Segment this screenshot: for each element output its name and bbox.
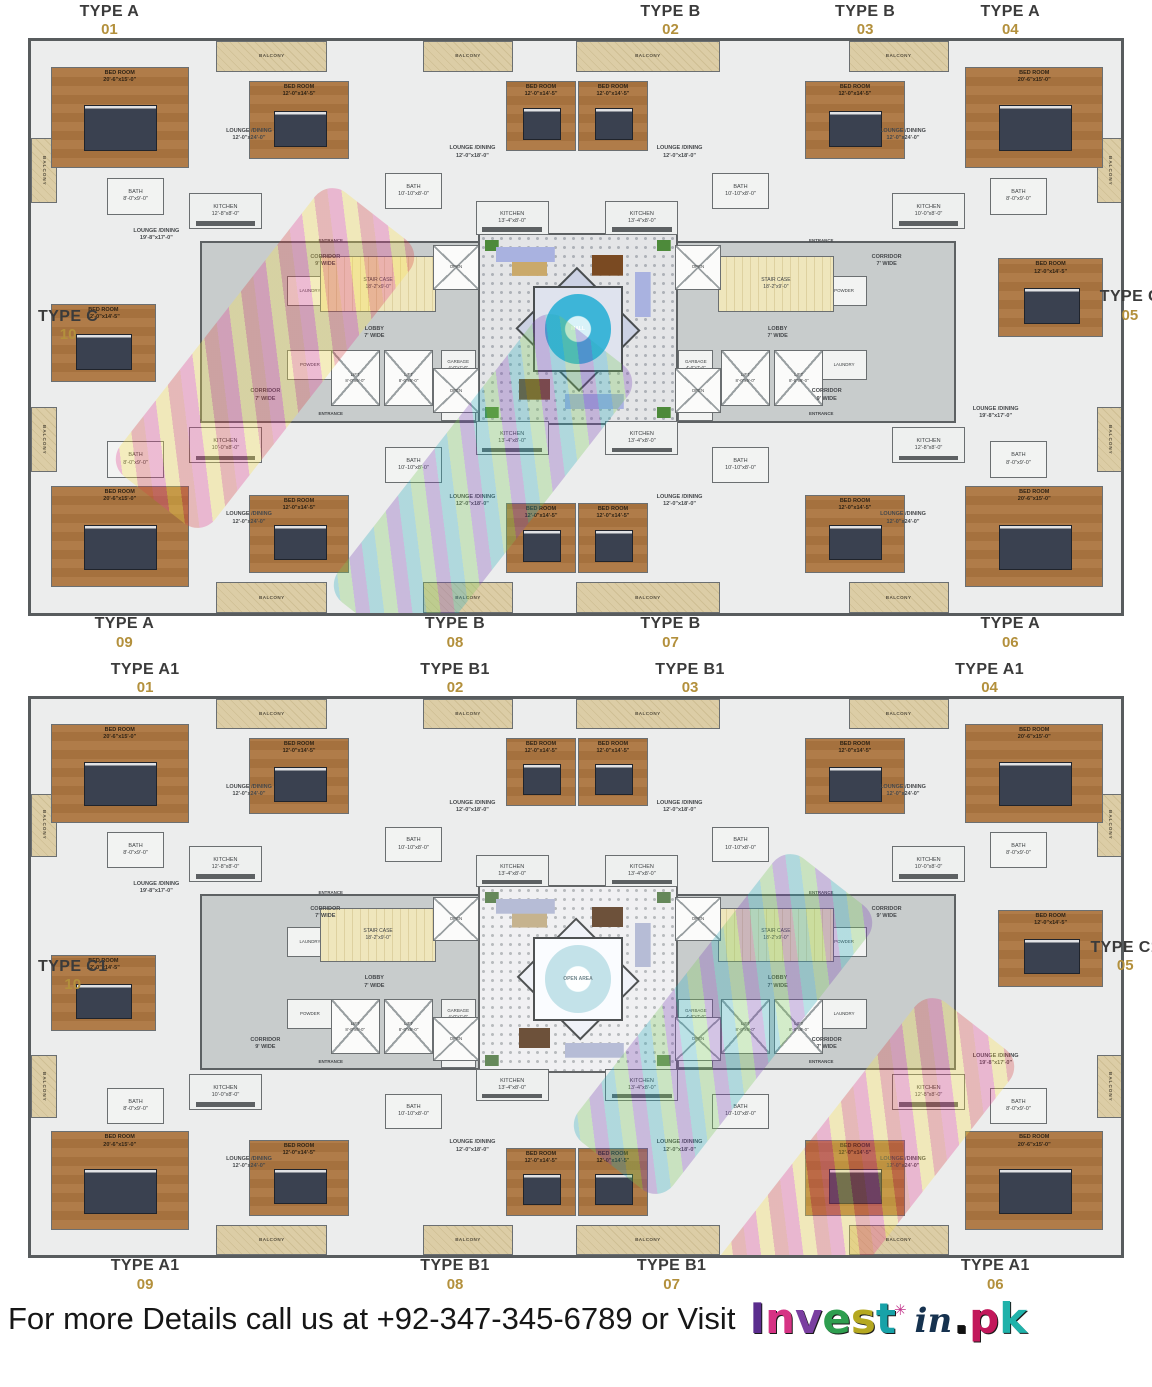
unit-type: TYPE A [80, 3, 140, 21]
fountain: MALL [545, 294, 612, 364]
entrance-label: ENTRANCE [789, 231, 854, 251]
balcony: BALCONY [423, 41, 512, 72]
central-atrium: MALL [478, 233, 678, 426]
room-laundry: LAUNDRY [821, 999, 867, 1029]
room-lounge-label: LOUNGE /DINING 12'-0"x24'-0" [843, 115, 963, 155]
entrance-label: ENTRANCE [789, 1052, 854, 1071]
entrance-label: ENTRANCE [298, 404, 363, 424]
room-bath: BATH 10'-10"x8'-0" [385, 827, 442, 862]
unit-type-label: TYPE B02 [640, 3, 700, 39]
balcony: BALCONY [423, 699, 512, 729]
unit-type: TYPE B1 [655, 661, 725, 679]
room-bath: BATH 10'-10"x8'-0" [712, 1094, 769, 1129]
lobby-label: LOBBY 7' WIDE [740, 318, 816, 347]
room-kitchen: KITCHEN 10'-0"x8'-0" [189, 1074, 262, 1109]
unit-type-label: TYPE B108 [420, 1257, 490, 1293]
room-bath: BATH 10'-10"x8'-0" [385, 447, 442, 483]
room-bath: BATH 8'-0"x9'-0" [107, 832, 164, 867]
room-lounge-label: LOUNGE /DINING 12'-0"x18'-0" [636, 484, 723, 518]
unit-number: 01 [80, 21, 140, 38]
balcony: BALCONY [576, 1225, 720, 1255]
unit-type-label: TYPE C05 [1100, 289, 1152, 325]
unit-type-label: TYPE B03 [835, 3, 895, 39]
lift: LIFT 8'-0"x6'-0" [384, 350, 433, 406]
unit-number: 04 [980, 21, 1040, 38]
corridor-label: CORRIDOR 9' WIDE [849, 899, 925, 927]
lift: LIFT 8'-0"x6'-0" [721, 999, 770, 1054]
room-bath: BATH 8'-0"x9'-0" [990, 178, 1047, 214]
unit-type-label: TYPE A04 [980, 3, 1040, 39]
room-lounge-label: LOUNGE /DINING 12'-0"x18'-0" [429, 1130, 516, 1163]
logo-script-in: in [915, 1304, 953, 1338]
room-lounge-label: LOUNGE /DINING 12'-0"x24'-0" [843, 771, 963, 810]
open-shaft: OPEN [433, 897, 479, 941]
unit-type-label: TYPE A09 [95, 615, 155, 651]
balcony: BALCONY [423, 582, 512, 613]
balcony: BALCONY [576, 41, 720, 72]
balcony: BALCONY [576, 582, 720, 613]
open-shaft: OPEN [675, 1017, 721, 1061]
room-lounge-label: LOUNGE /DINING 19'-8"x17'-0" [947, 396, 1045, 430]
floor-plan-lower: TYPE A101 TYPE B102 TYPE B103 TYPE A104 … [0, 658, 1152, 1294]
footer-message: For more Details call us at +92-347-345-… [8, 1301, 735, 1337]
unit-type: TYPE A [980, 3, 1040, 21]
balcony: BALCONY [849, 582, 949, 613]
unit-type-label: TYPE B103 [655, 661, 725, 697]
room-kitchen: KITCHEN 12'-8"x8'-0" [892, 427, 965, 463]
room-bath: BATH 8'-0"x9'-0" [990, 441, 1047, 477]
unit-type: TYPE A [95, 615, 155, 633]
balcony: BALCONY [576, 699, 720, 729]
entrance-label: ENTRANCE [298, 1052, 363, 1071]
unit-type: TYPE C [1100, 289, 1152, 307]
unit-number: 09 [95, 634, 155, 651]
central-atrium-open-area: OPEN AREA [478, 885, 678, 1072]
fountain: OPEN AREA [545, 945, 612, 1013]
unit-type-label: TYPE B102 [420, 661, 490, 697]
balcony-side: BALCONY [31, 1055, 57, 1118]
room-bedroom: BED ROOM 12'-0"x14'-5" [506, 1148, 576, 1216]
unit-number: 06 [961, 1276, 1030, 1293]
lift: LIFT 8'-0"x6'-0" [331, 999, 380, 1054]
room-lounge-label: LOUNGE /DINING 12'-0"x18'-0" [429, 791, 516, 824]
unit-type-label: TYPE C105 [1091, 939, 1152, 975]
unit-type-label: TYPE B107 [637, 1257, 707, 1293]
unit-number: 05 [1100, 307, 1152, 324]
room-lounge-label: LOUNGE /DINING 12'-0"x18'-0" [636, 1130, 723, 1163]
unit-number: 10 [38, 327, 98, 344]
lift: LIFT 8'-0"x6'-0" [384, 999, 433, 1054]
room-bedroom: BED ROOM 12'-0"x14'-5" [506, 81, 576, 151]
room-bedroom: BED ROOM 20'-6"x15'-0" [51, 486, 189, 587]
open-shaft: OPEN [433, 245, 479, 290]
balcony: BALCONY [849, 41, 949, 72]
room-lounge-label: LOUNGE /DINING 12'-0"x18'-0" [429, 484, 516, 518]
room-bedroom: BED ROOM 20'-6"x15'-0" [965, 486, 1103, 587]
room-kitchen: KITCHEN 13'-4"x8'-0" [476, 1069, 549, 1102]
room-lounge-label: LOUNGE /DINING 12'-0"x24'-0" [189, 499, 309, 539]
balcony: BALCONY [216, 41, 327, 72]
investin-pk-logo: I n v e s t ✳ in . p k [749, 1298, 1027, 1340]
entrance-label: ENTRANCE [298, 884, 363, 903]
logo-dot: . [953, 1298, 969, 1340]
unit-type-label: TYPE B07 [640, 615, 700, 651]
unit-type-label: TYPE A101 [111, 661, 180, 697]
unit-type-label: TYPE A109 [111, 1257, 180, 1293]
room-lounge-label: LOUNGE /DINING 12'-0"x18'-0" [636, 791, 723, 824]
logo-letter: n [765, 1298, 795, 1340]
unit-type: TYPE B1 [420, 661, 490, 679]
room-powder: POWDER [287, 999, 333, 1029]
unit-number: 05 [1091, 957, 1152, 974]
unit-number: 02 [640, 21, 700, 38]
unit-number: 10 [38, 977, 108, 994]
room-lounge-label: LOUNGE /DINING 12'-0"x18'-0" [429, 135, 516, 169]
room-bedroom: BED ROOM 20'-6"x15'-0" [965, 724, 1103, 823]
floor-plan-drawing: BALCONY BALCONY BALCONY BALCONY BALCONY … [28, 38, 1124, 616]
room-bath: BATH 8'-0"x9'-0" [107, 1088, 164, 1123]
logo-letter: p [969, 1298, 999, 1340]
balcony-side: BALCONY [1097, 1055, 1123, 1118]
balcony-side: BALCONY [31, 407, 57, 472]
unit-number: 04 [955, 679, 1024, 696]
room-bedroom: BED ROOM 20'-6"x15'-0" [51, 724, 189, 823]
room-bath: BATH 10'-10"x8'-0" [712, 447, 769, 483]
unit-type-label: TYPE B08 [425, 615, 485, 651]
balcony: BALCONY [423, 1225, 512, 1255]
logo-letter: v [795, 1298, 822, 1340]
room-kitchen: KITCHEN 13'-4"x8'-0" [605, 421, 678, 454]
open-shaft: OPEN [433, 1017, 479, 1061]
balcony: BALCONY [216, 699, 327, 729]
room-lounge-label: LOUNGE /DINING 19'-8"x17'-0" [107, 218, 205, 252]
unit-type: TYPE C1 [38, 958, 108, 976]
room-lounge-label: LOUNGE /DINING 12'-0"x24'-0" [189, 1144, 309, 1183]
room-lounge-label: LOUNGE /DINING 12'-0"x24'-0" [189, 115, 309, 155]
room-kitchen: KITCHEN 12'-8"x8'-0" [892, 1074, 965, 1109]
room-bath: BATH 10'-10"x8'-0" [712, 827, 769, 862]
unit-type: TYPE B [835, 3, 895, 21]
unit-type: TYPE A1 [955, 661, 1024, 679]
room-bath: BATH 10'-10"x8'-0" [712, 173, 769, 209]
lobby-label: LOBBY 7' WIDE [740, 969, 816, 997]
unit-type-label: TYPE A106 [961, 1257, 1030, 1293]
balcony: BALCONY [849, 699, 949, 729]
room-bath: BATH 10'-10"x8'-0" [385, 1094, 442, 1129]
unit-number: 01 [111, 679, 180, 696]
room-kitchen: KITCHEN 13'-4"x8'-0" [605, 1069, 678, 1102]
unit-type: TYPE A1 [961, 1257, 1030, 1275]
unit-number: 08 [425, 634, 485, 651]
staircase: STAIR CASE 18'-2"x9'-0" [718, 908, 834, 963]
room-lounge-label: LOUNGE /DINING 12'-0"x24'-0" [843, 1144, 963, 1183]
balcony: BALCONY [216, 1225, 327, 1255]
unit-type: TYPE A [980, 615, 1040, 633]
room-bath: BATH 8'-0"x9'-0" [107, 178, 164, 214]
room-bedroom: BED ROOM 12'-0"x14'-5" [998, 910, 1104, 986]
unit-number: 03 [835, 21, 895, 38]
floor-plan-drawing: BALCONY BALCONY BALCONY BALCONY BALCONY … [28, 696, 1124, 1258]
room-lounge-label: LOUNGE /DINING 19'-8"x17'-0" [947, 1044, 1045, 1077]
room-laundry: LAUNDRY [821, 350, 867, 381]
logo-letter: I [749, 1298, 765, 1340]
room-kitchen: KITCHEN 10'-0"x8'-0" [892, 846, 965, 881]
unit-number: 02 [420, 679, 490, 696]
unit-type: TYPE B1 [637, 1257, 707, 1275]
flyer-page: TYPE A01 TYPE B02 TYPE B03 TYPE A04 TYPE… [0, 0, 1152, 1387]
floor-plan-upper: TYPE A01 TYPE B02 TYPE B03 TYPE A04 TYPE… [0, 0, 1152, 652]
unit-type: TYPE B [425, 615, 485, 633]
room-lounge-label: LOUNGE /DINING 12'-0"x24'-0" [189, 771, 309, 810]
corridor-label: CORRIDOR 9' WIDE [227, 1030, 303, 1058]
logo-letter: t [876, 1298, 896, 1340]
corridor-label: CORRIDOR 7' WIDE [287, 899, 363, 927]
unit-type: TYPE A1 [111, 1257, 180, 1275]
entrance-label: ENTRANCE [789, 404, 854, 424]
lobby-label: LOBBY 7' WIDE [336, 969, 412, 997]
room-bath: BATH 8'-0"x9'-0" [107, 441, 164, 477]
lift: LIFT 8'-0"x6'-0" [331, 350, 380, 406]
balcony: BALCONY [849, 1225, 949, 1255]
corridor-label: CORRIDOR 9' WIDE [287, 247, 363, 276]
room-kitchen: KITCHEN 13'-4"x8'-0" [476, 421, 549, 454]
logo-letter: e [822, 1298, 851, 1340]
room-kitchen: KITCHEN 10'-0"x8'-0" [892, 193, 965, 229]
room-bedroom: BED ROOM 20'-6"x15'-0" [51, 1131, 189, 1230]
unit-type: TYPE C [38, 308, 98, 326]
logo-letter: k [999, 1298, 1027, 1340]
room-bath: BATH 8'-0"x9'-0" [990, 1088, 1047, 1123]
room-kitchen: KITCHEN 10'-0"x8'-0" [189, 427, 262, 463]
unit-type-label: TYPE C110 [38, 958, 108, 994]
lift: LIFT 8'-0"x6'-0" [721, 350, 770, 406]
room-kitchen: KITCHEN 13'-4"x8'-0" [605, 855, 678, 888]
unit-type-label: TYPE A01 [80, 3, 140, 39]
unit-number: 07 [637, 1276, 707, 1293]
balcony: BALCONY [216, 582, 327, 613]
open-shaft: OPEN [675, 245, 721, 290]
open-shaft: OPEN [433, 368, 479, 413]
unit-type-label: TYPE C10 [38, 308, 98, 344]
room-kitchen: KITCHEN 13'-4"x8'-0" [476, 855, 549, 888]
balcony-side: BALCONY [1097, 407, 1123, 472]
room-kitchen: KITCHEN 13'-4"x8'-0" [605, 201, 678, 234]
entrance-label: ENTRANCE [298, 231, 363, 251]
entrance-label: ENTRANCE [789, 884, 854, 903]
room-powder: POWDER [287, 350, 333, 381]
corridor-label: CORRIDOR 7' WIDE [849, 247, 925, 276]
room-lounge-label: LOUNGE /DINING 12'-0"x24'-0" [843, 499, 963, 539]
room-lounge-label: LOUNGE /DINING 12'-0"x18'-0" [636, 135, 723, 169]
footer: For more Details call us at +92-347-345-… [0, 1294, 1152, 1340]
room-bedroom: BED ROOM 20'-6"x15'-0" [965, 67, 1103, 168]
room-bath: BATH 8'-0"x9'-0" [990, 832, 1047, 867]
unit-type-label: TYPE A104 [955, 661, 1024, 697]
unit-number: 06 [980, 634, 1040, 651]
room-bedroom: BED ROOM 20'-6"x15'-0" [51, 67, 189, 168]
unit-type: TYPE A1 [111, 661, 180, 679]
room-kitchen: KITCHEN 13'-4"x8'-0" [476, 201, 549, 234]
unit-type: TYPE C1 [1091, 939, 1152, 957]
unit-type-label: TYPE A06 [980, 615, 1040, 651]
open-shaft: OPEN [675, 897, 721, 941]
room-bedroom: BED ROOM 12'-0"x14'-5" [506, 503, 576, 573]
room-bath: BATH 10'-10"x8'-0" [385, 173, 442, 209]
corridor-label: CORRIDOR 7' WIDE [227, 381, 303, 410]
unit-number: 09 [111, 1276, 180, 1293]
open-shaft: OPEN [675, 368, 721, 413]
room-bedroom: BED ROOM 12'-0"x14'-5" [506, 738, 576, 806]
room-bedroom: BED ROOM 12'-0"x14'-5" [998, 258, 1104, 336]
unit-number: 07 [640, 634, 700, 651]
staircase: STAIR CASE 18'-2"x9'-0" [718, 256, 834, 312]
logo-spark-icon: ✳ [894, 1303, 907, 1318]
logo-letter: s [851, 1298, 876, 1340]
room-lounge-label: LOUNGE /DINING 19'-8"x17'-0" [107, 871, 205, 904]
unit-number: 08 [420, 1276, 490, 1293]
unit-type: TYPE B [640, 3, 700, 21]
unit-type: TYPE B1 [420, 1257, 490, 1275]
room-bedroom: BED ROOM 20'-6"x15'-0" [965, 1131, 1103, 1230]
unit-number: 03 [655, 679, 725, 696]
lobby-label: LOBBY 7' WIDE [336, 318, 412, 347]
unit-type: TYPE B [640, 615, 700, 633]
